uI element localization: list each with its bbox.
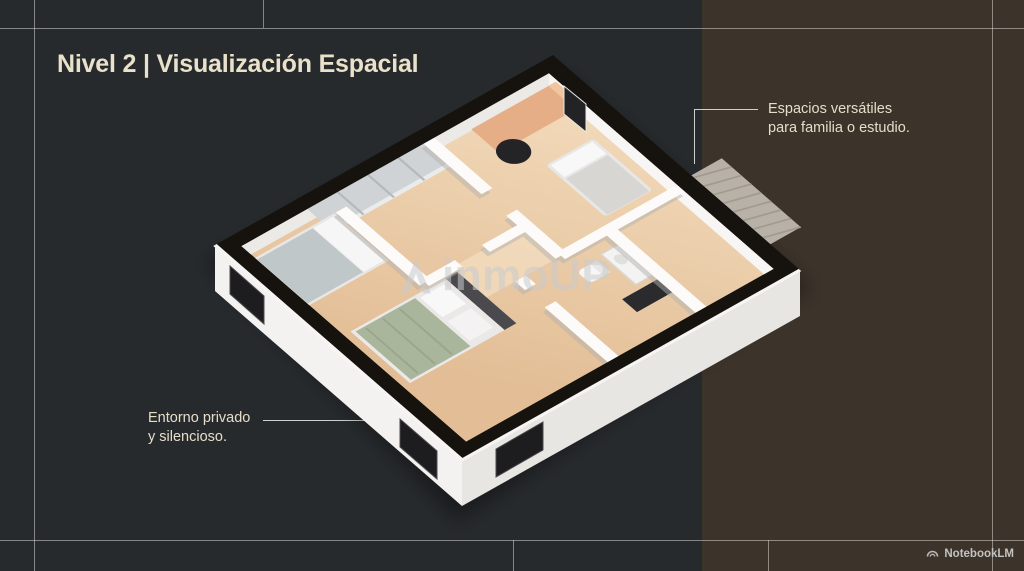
footer-brand: NotebookLM	[944, 548, 1014, 560]
watermark: inmoUP	[396, 254, 611, 298]
notebooklm-logo-icon	[926, 547, 939, 560]
slide: Nivel 2 | Visualización Espacial Espacio…	[0, 0, 1024, 571]
footer: NotebookLM	[0, 547, 1014, 560]
watermark-text: inmoUP	[442, 254, 611, 298]
inmoup-logo-icon	[396, 256, 436, 296]
